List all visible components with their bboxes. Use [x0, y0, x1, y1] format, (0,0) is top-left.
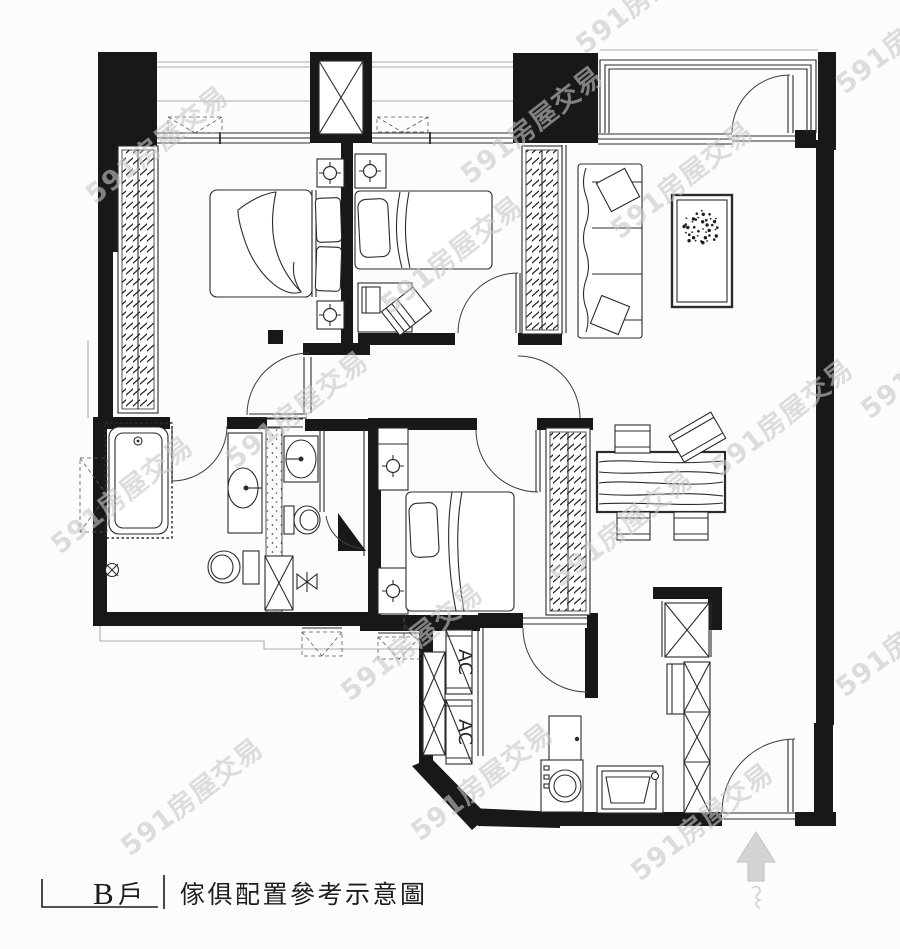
caption: B 戶 傢俱配置參考示意圖	[42, 875, 428, 911]
door-bath2	[326, 513, 366, 551]
caption-unit-letter: B	[93, 876, 114, 911]
dining-chair	[674, 512, 708, 540]
washing-machine	[541, 760, 583, 812]
ac-unit-1: AC	[446, 630, 476, 694]
door-bedroom3	[476, 430, 540, 492]
watermark-text: 591房屋交易	[830, 573, 900, 704]
nightstand-bedroom3-top	[378, 428, 408, 490]
sofa	[578, 164, 642, 338]
toilet-master-bath	[208, 551, 259, 584]
fridge-cabinet	[662, 601, 711, 657]
floor-drain-icon	[106, 564, 119, 577]
valve-icon	[297, 572, 317, 592]
ac-unit-2: AC	[446, 700, 476, 764]
entry-balcony	[600, 60, 816, 141]
watermark-text: 591房屋交易	[830, 0, 900, 101]
floor-plan-page: AC AC 591房屋交易591房屋交易591房屋交易591房屋交易591房屋交…	[0, 0, 900, 949]
watermark-text: 591房屋交易	[855, 295, 900, 426]
coffee-table	[672, 195, 732, 307]
door-corridor-living	[518, 356, 580, 418]
nightstand-master-top	[317, 159, 344, 187]
tall-cabinets	[667, 662, 710, 813]
nightstand-bedroom3-bottom	[378, 568, 408, 614]
master-bedroom	[118, 146, 344, 418]
toilet-bath2	[284, 506, 320, 534]
kitchen-faucet-icon	[652, 773, 659, 780]
wardrobe-bedroom2	[522, 146, 562, 334]
kitchen-sink-counter	[597, 766, 663, 813]
dining-chair	[615, 425, 650, 453]
louver-grille	[423, 652, 445, 755]
plumbing-shaft	[265, 556, 293, 610]
sink-bath2	[284, 436, 318, 482]
door-laundry	[523, 618, 587, 692]
ac-label: AC	[454, 649, 476, 675]
nightstand-bedroom2	[355, 154, 386, 188]
caption-title: 傢俱配置參考示意圖	[180, 880, 428, 909]
nightstand-master-bottom	[317, 301, 344, 329]
double-bed-master	[210, 190, 342, 297]
watermark-text: 591房屋交易	[115, 732, 270, 863]
window-rear-small-1	[302, 628, 342, 656]
laundry-area	[523, 618, 587, 812]
elevator-shaft-icon	[310, 52, 372, 143]
north-arrow-icon	[737, 832, 775, 908]
watermark-text: 591房屋交易	[570, 0, 725, 61]
caption-unit-suffix: 戶	[118, 880, 143, 909]
floor-plan-drawing: AC AC 591房屋交易591房屋交易591房屋交易591房屋交易591房屋交…	[0, 0, 900, 949]
watermark-text: 591房屋交易	[705, 353, 860, 484]
door-bedroom2	[458, 273, 520, 333]
ac-label: AC	[454, 719, 476, 745]
